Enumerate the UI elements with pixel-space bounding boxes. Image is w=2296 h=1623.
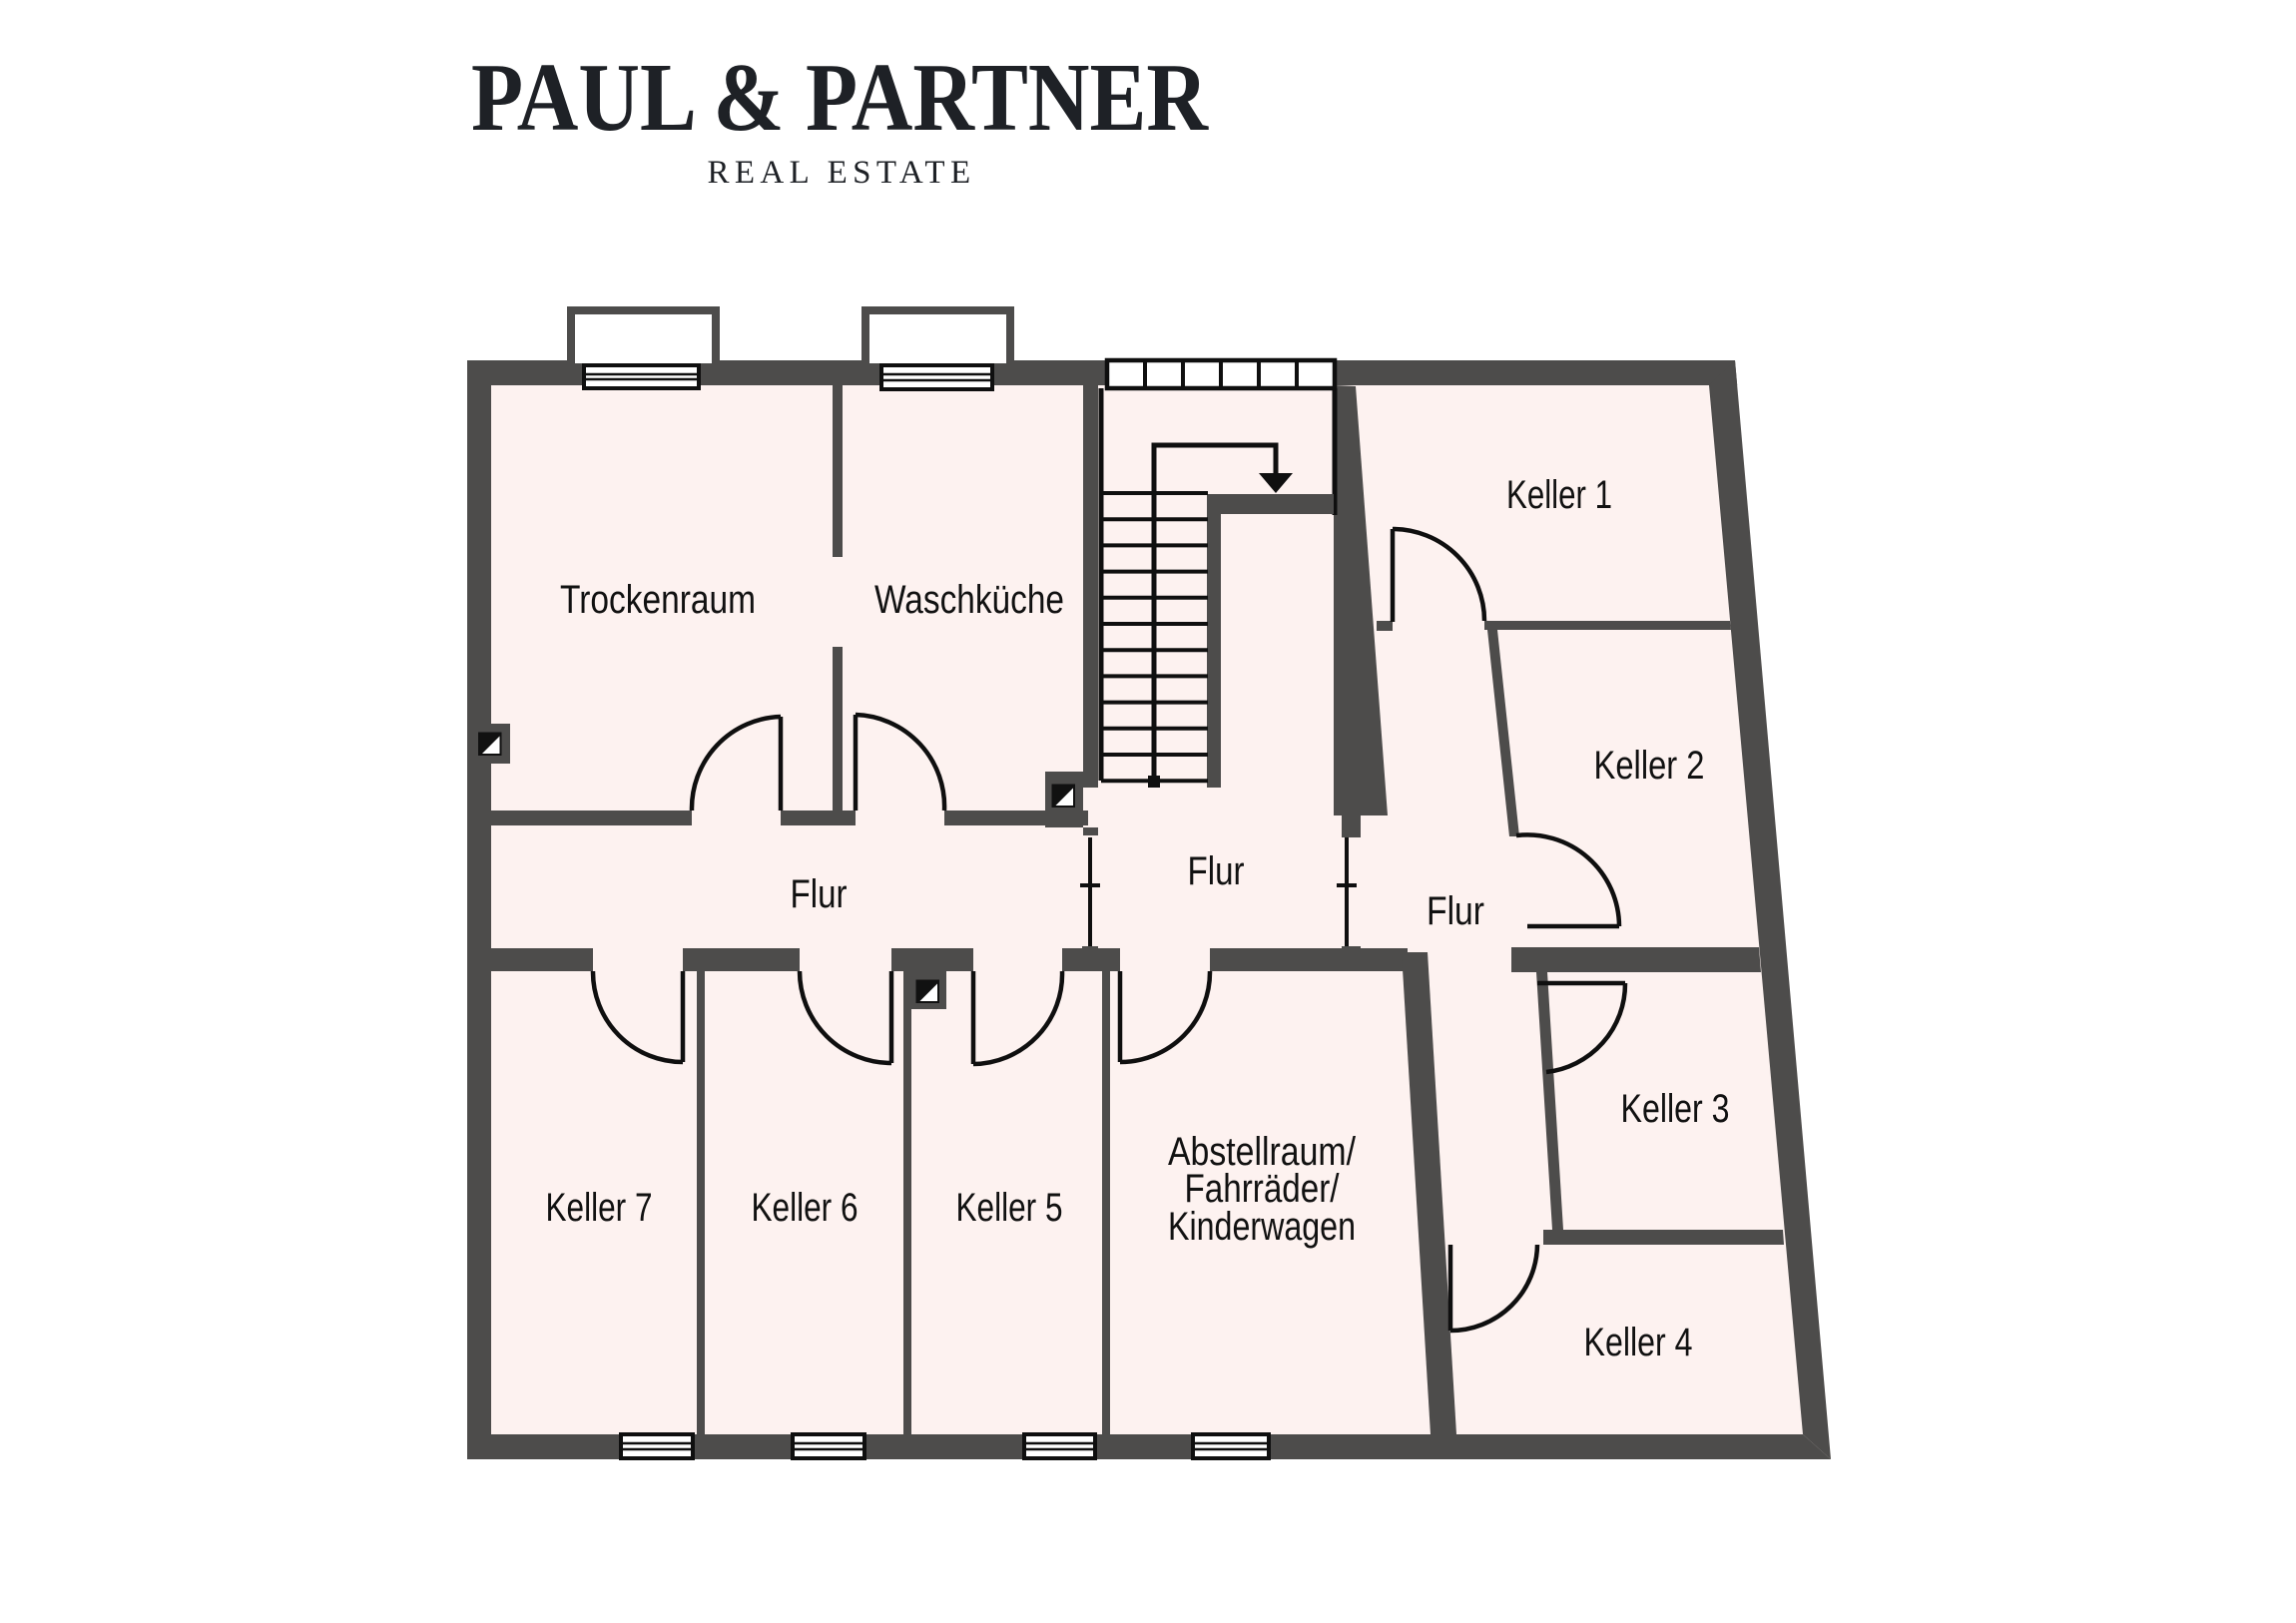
svg-text:Trockenraum: Trockenraum [560, 578, 756, 622]
svg-text:Keller 7: Keller 7 [546, 1186, 653, 1230]
svg-text:Keller 2: Keller 2 [1594, 744, 1705, 788]
svg-text:Waschküche: Waschküche [874, 578, 1064, 622]
svg-text:Flur: Flur [791, 872, 848, 916]
svg-text:Keller 4: Keller 4 [1584, 1321, 1693, 1364]
svg-text:Keller 1: Keller 1 [1506, 473, 1612, 517]
svg-text:PAUL & PARTNER: PAUL & PARTNER [471, 44, 1209, 152]
svg-text:Kinderwagen: Kinderwagen [1168, 1205, 1356, 1249]
svg-text:REAL ESTATE: REAL ESTATE [707, 155, 975, 191]
svg-text:Keller 3: Keller 3 [1621, 1087, 1730, 1131]
svg-text:Flur: Flur [1188, 849, 1245, 893]
svg-text:Flur: Flur [1427, 889, 1484, 933]
svg-text:Keller 5: Keller 5 [956, 1186, 1063, 1230]
svg-text:Keller 6: Keller 6 [752, 1186, 859, 1230]
